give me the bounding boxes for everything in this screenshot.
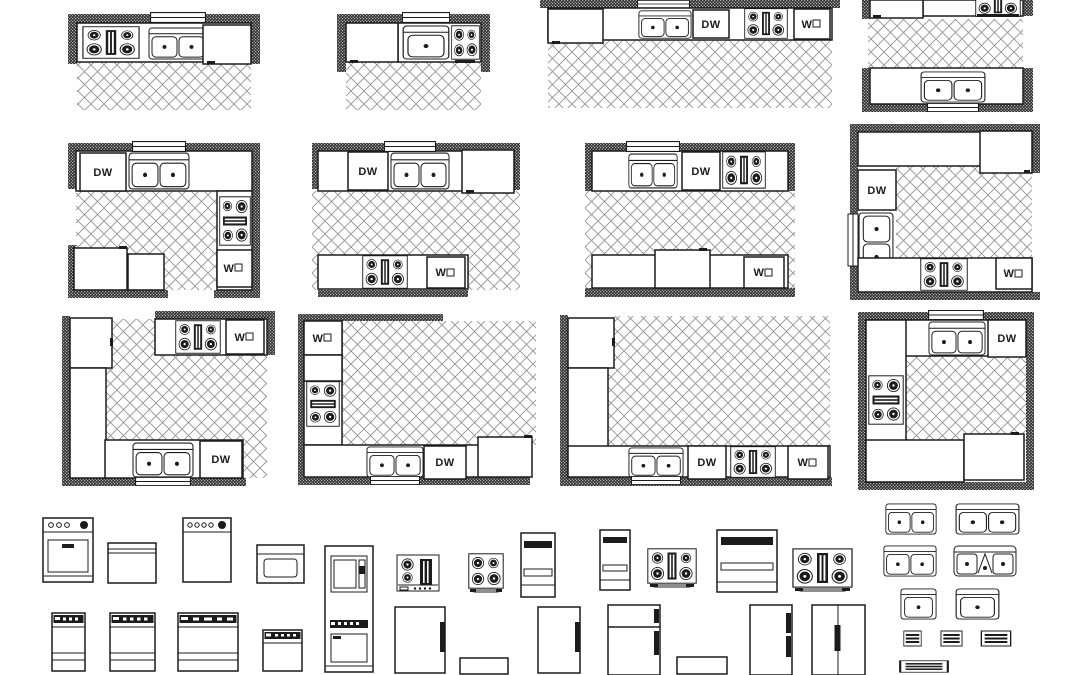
- wall-oven-label: W: [224, 263, 235, 275]
- double-sink-icon: [367, 447, 423, 477]
- range-base-tick: [977, 14, 1019, 17]
- refrigerator: [980, 131, 1032, 173]
- cooktop-plan-icon: [397, 555, 439, 591]
- window-icon: [385, 142, 436, 152]
- wall-oven-label: W: [754, 267, 765, 279]
- floor-hatch: [77, 62, 251, 110]
- refrigerator: [70, 318, 113, 368]
- kitchen-plan-10: W DW: [298, 314, 536, 485]
- kitchen-plan-7: DW W: [585, 142, 795, 297]
- vent-grille-medium-icon: [941, 631, 962, 646]
- wall-oven-box: W: [744, 257, 784, 288]
- wall-oven-label: W: [436, 267, 447, 279]
- refrigerator: [346, 23, 398, 63]
- range-front-compact-icon: [263, 630, 302, 671]
- oven-microwave-tower-icon: [325, 546, 373, 672]
- refrigerator-side-by-side-front-icon: [812, 605, 865, 675]
- double-sink-wide-plan-icon: [956, 504, 1019, 534]
- wall-oven-label: W: [1004, 268, 1015, 280]
- refrigerator: [655, 248, 710, 288]
- window-icon: [627, 142, 680, 152]
- range-icon: [745, 9, 788, 39]
- double-sink-icon: [639, 11, 691, 38]
- dishwasher-box: DW: [200, 441, 242, 478]
- base-cabinet-front-icon: [677, 657, 727, 674]
- single-sink-wide-plan-icon: [956, 589, 999, 619]
- wall-oven-box: W: [304, 321, 342, 355]
- floor-hatch: [608, 316, 830, 446]
- window-icon: [929, 311, 984, 320]
- floor-hatch: [868, 19, 1023, 68]
- wall-oven-box: W: [788, 446, 828, 479]
- kitchen-plan-1: [68, 13, 260, 110]
- kitchen-plan-8: DW W: [848, 124, 1040, 300]
- dishwasher-box: DW: [682, 152, 720, 190]
- dishwasher-front-icon: [108, 543, 156, 583]
- counter: [70, 368, 106, 478]
- wall-oven-box: W: [427, 257, 465, 288]
- range-icon: [452, 26, 480, 59]
- range-icon: [176, 321, 221, 353]
- range-plan-grill-icon: [648, 549, 696, 587]
- floor-hatch: [548, 40, 832, 108]
- kitchen-plan-4: [862, 0, 1033, 112]
- refrigerator: [568, 318, 615, 368]
- range-with-oven-window-icon: [43, 518, 93, 582]
- double-sink-icon: [629, 448, 683, 477]
- dishwasher-box: DW: [424, 446, 466, 479]
- refrigerator-top-freezer-front-icon: [608, 605, 660, 675]
- single-sink-icon: [403, 26, 449, 59]
- refrigerator: [74, 246, 127, 290]
- window-icon: [133, 142, 186, 152]
- double-sink-icon: [391, 153, 449, 189]
- cabinet: [304, 355, 342, 381]
- range-icon: [307, 382, 339, 427]
- dishwasher-label: DW: [701, 19, 720, 31]
- wall-oven-label: W: [235, 332, 246, 344]
- wall-oven-box: W: [996, 258, 1032, 289]
- refrigerator-front-icon: [538, 607, 580, 673]
- window-icon: [136, 477, 191, 485]
- range-base-tick: [455, 60, 475, 63]
- wall-oven-label: W: [313, 333, 324, 345]
- counter: [866, 440, 964, 482]
- floor-hatch: [346, 62, 481, 110]
- double-sink-icon: [149, 28, 207, 59]
- range-icon: [869, 376, 903, 424]
- floor-hatch: [896, 166, 1032, 258]
- floor-hatch: [906, 356, 1026, 442]
- kitchen-plan-5: DW W: [68, 142, 260, 298]
- dishwasher-box: DW: [348, 152, 388, 190]
- range-plan-4-burner-icon: [469, 554, 503, 592]
- kitchen-plan-2: [337, 13, 490, 110]
- dishwasher-label: DW: [211, 454, 230, 466]
- range-icon: [723, 152, 766, 188]
- dishwasher-box: DW: [988, 320, 1026, 357]
- double-sink-icon: [921, 72, 985, 102]
- dishwasher-label: DW: [997, 333, 1016, 345]
- double-sink-plan-icon: [886, 504, 936, 534]
- vent-grille-small-icon: [904, 631, 921, 646]
- dishwasher-label: DW: [697, 457, 716, 469]
- kitchen-plan-12: DW: [858, 311, 1034, 491]
- corner-sink-plan-icon: [954, 546, 1016, 576]
- dishwasher-label: DW: [435, 457, 454, 469]
- vent-grille-wide-icon: [900, 661, 948, 672]
- range-front-narrow-icon: [52, 613, 85, 671]
- refrigerator-front-icon: [395, 607, 445, 673]
- dishwasher-box: DW: [693, 10, 729, 38]
- range-icon: [363, 256, 408, 288]
- range-icon: [921, 259, 967, 291]
- window-icon: [928, 103, 979, 111]
- window-icon: [638, 0, 690, 7]
- cabinet: [203, 25, 251, 64]
- window-icon: [151, 13, 206, 23]
- dishwasher-box: DW: [858, 170, 896, 210]
- double-sink-icon: [929, 322, 985, 355]
- double-sink-icon: [129, 153, 189, 189]
- vent-grille-large-icon: [981, 631, 1010, 646]
- range-icon: [976, 0, 1021, 16]
- dishwasher-label: DW: [691, 166, 710, 178]
- refrigerator: [964, 432, 1024, 480]
- refrigerator: [462, 150, 514, 193]
- wall-oven-front-icon: [257, 545, 304, 583]
- wall-oven-wide-icon: [717, 530, 777, 592]
- window-icon: [632, 476, 681, 484]
- cad-sheet: DW W DW W: [0, 0, 1080, 675]
- range-front-medium-icon: [110, 613, 155, 671]
- double-sink-plan-icon: [884, 546, 936, 576]
- refrigerator: [870, 0, 923, 18]
- floor-hatch: [342, 321, 536, 445]
- refrigerator: [548, 9, 603, 44]
- wall-oven-box: W: [217, 250, 252, 287]
- wall-oven-label: W: [802, 19, 813, 31]
- kitchen-plan-3: DW W: [540, 0, 840, 108]
- range-front-wide-icon: [178, 613, 238, 671]
- range-front-icon: [183, 518, 231, 582]
- double-sink-icon: [133, 443, 193, 477]
- wall-oven-box: W: [226, 320, 264, 354]
- kitchen-plan-11: DW W: [560, 315, 832, 486]
- range-icon: [731, 447, 776, 478]
- cabinet: [128, 254, 164, 290]
- dishwasher-label: DW: [867, 185, 886, 197]
- refrigerator: [478, 435, 532, 477]
- range-icon: [83, 27, 139, 59]
- kitchen-plan-9: W DW: [62, 311, 275, 486]
- refrigerator-two-handle-front-icon: [750, 605, 792, 675]
- wall-oven-narrow-icon: [600, 530, 630, 590]
- dishwasher-label: DW: [93, 167, 112, 179]
- kitchen-plan-6: DW W: [312, 142, 520, 297]
- wall-oven-label: W: [798, 457, 809, 469]
- dishwasher-box: DW: [80, 153, 126, 191]
- range-plan-grill-wide-icon: [793, 549, 852, 591]
- base-cabinet-front-icon: [460, 658, 508, 674]
- single-sink-plan-icon: [901, 589, 936, 619]
- window-icon: [402, 13, 449, 23]
- dishwasher-label: DW: [358, 166, 377, 178]
- wall-oven-narrow-icon: [521, 533, 555, 597]
- window-icon: [371, 476, 420, 484]
- wall-oven-box: W: [794, 9, 830, 39]
- range-icon: [220, 197, 251, 245]
- dishwasher-box: DW: [688, 446, 726, 479]
- double-sink-icon: [629, 154, 677, 188]
